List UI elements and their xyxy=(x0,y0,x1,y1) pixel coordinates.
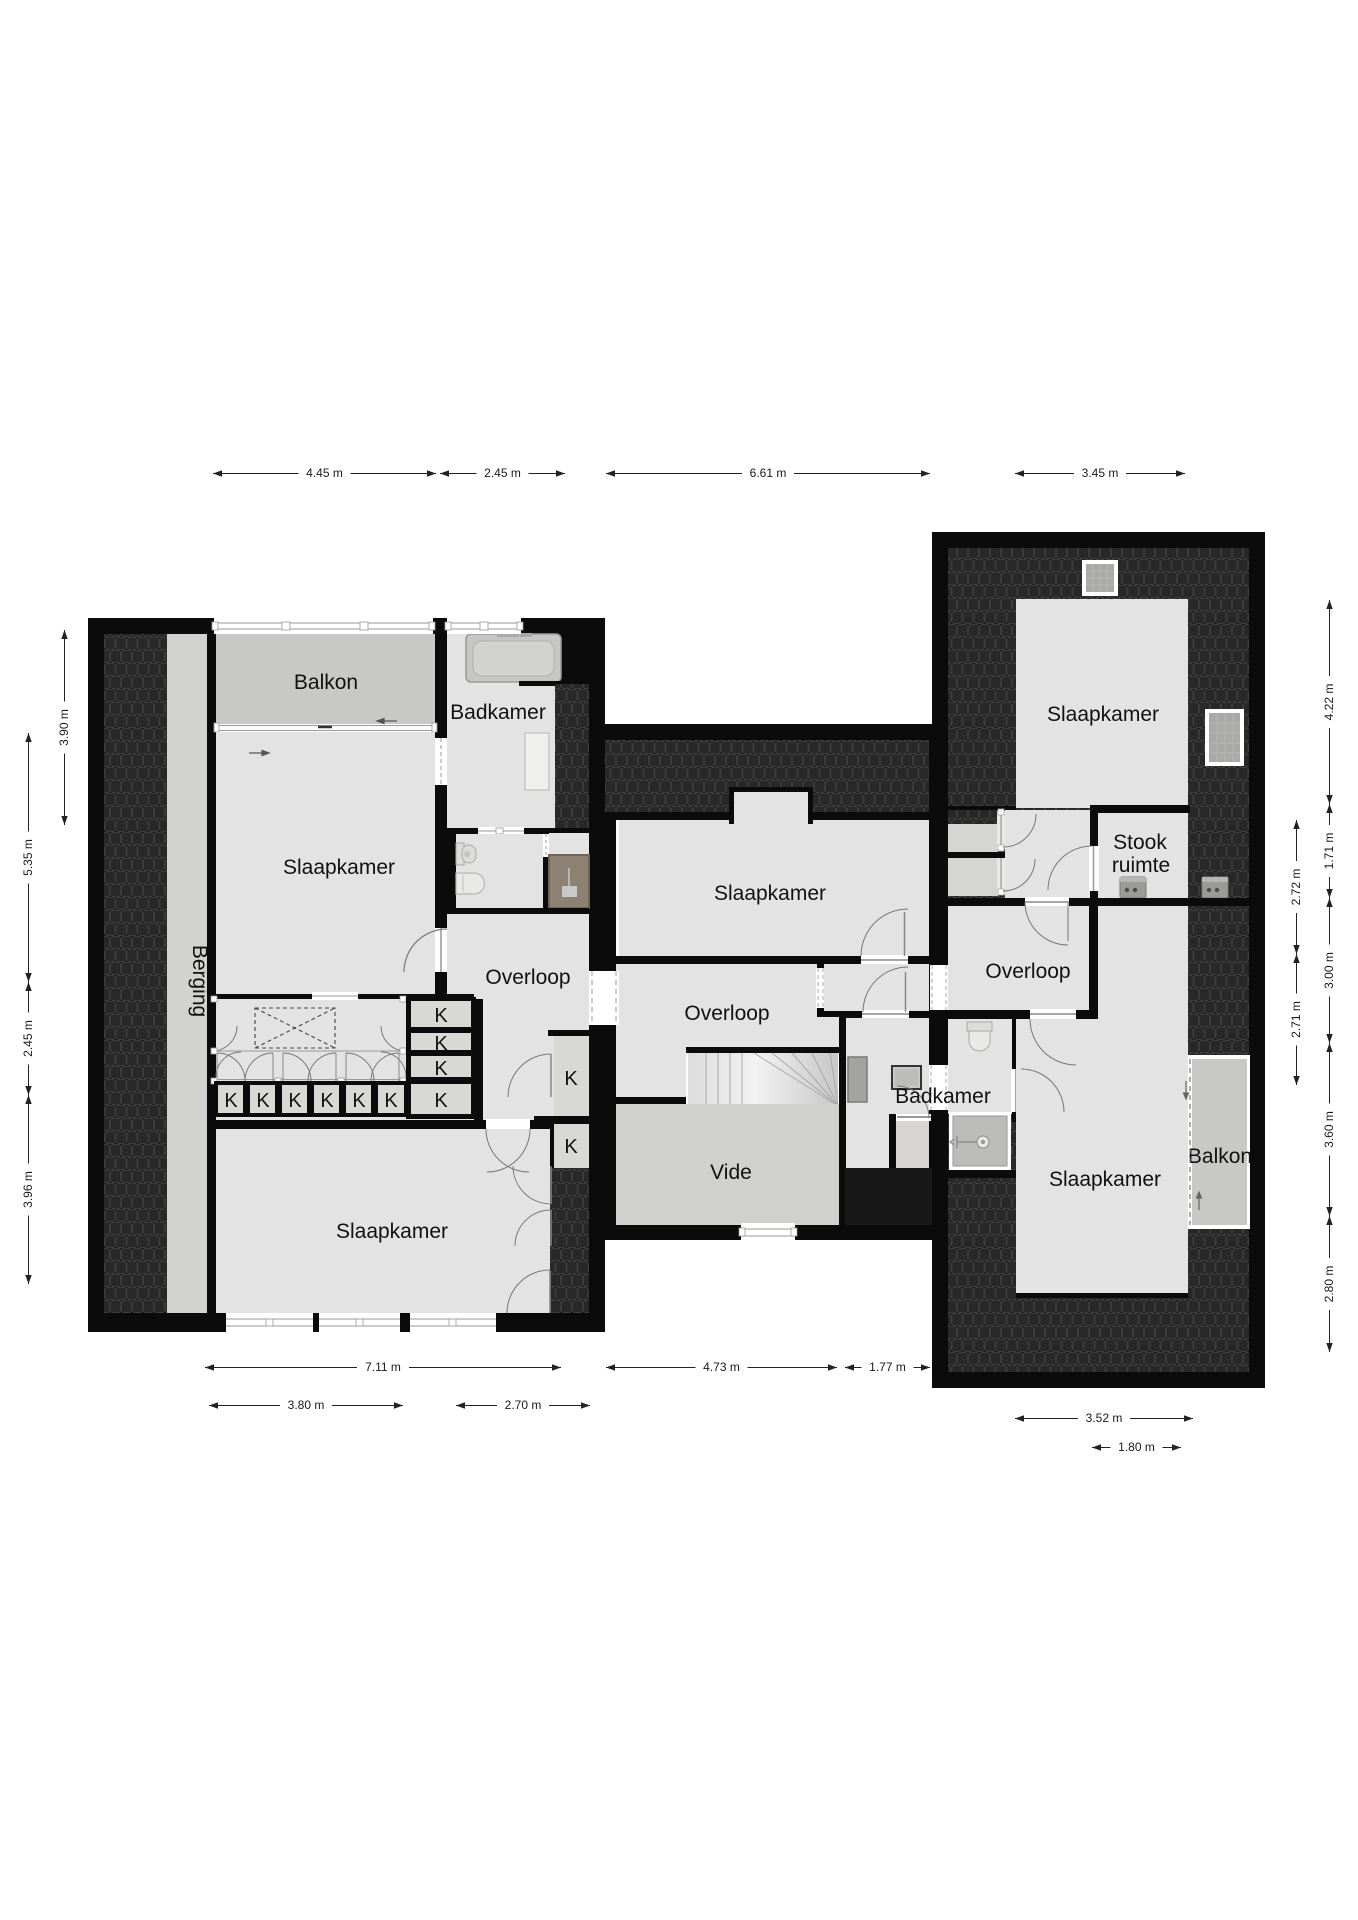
svg-text:3.90 m: 3.90 m xyxy=(57,709,71,746)
svg-text:Overloop: Overloop xyxy=(985,960,1070,983)
svg-text:3.60 m: 3.60 m xyxy=(1322,1111,1336,1148)
svg-text:K: K xyxy=(564,1068,578,1090)
svg-text:K: K xyxy=(224,1090,238,1112)
svg-text:ruimte: ruimte xyxy=(1112,854,1170,877)
svg-text:2.71 m: 2.71 m xyxy=(1289,1001,1303,1038)
svg-text:2.45 m: 2.45 m xyxy=(484,466,521,480)
svg-text:6.61 m: 6.61 m xyxy=(750,466,787,480)
svg-text:3.00 m: 3.00 m xyxy=(1322,952,1336,989)
svg-text:2.45 m: 2.45 m xyxy=(21,1020,35,1057)
svg-text:7.11 m: 7.11 m xyxy=(365,1360,401,1374)
svg-text:K: K xyxy=(564,1136,578,1158)
svg-text:Badkamer: Badkamer xyxy=(450,701,546,724)
svg-text:K: K xyxy=(256,1090,270,1112)
svg-text:2.70 m: 2.70 m xyxy=(505,1398,542,1412)
svg-text:K: K xyxy=(352,1090,366,1112)
svg-text:Slaapkamer: Slaapkamer xyxy=(1049,1168,1161,1191)
svg-text:Balkon: Balkon xyxy=(294,671,358,694)
svg-text:K: K xyxy=(384,1090,398,1112)
svg-text:Balkon: Balkon xyxy=(1188,1145,1252,1168)
svg-text:Overloop: Overloop xyxy=(485,966,570,989)
svg-text:K: K xyxy=(320,1090,334,1112)
svg-text:Overloop: Overloop xyxy=(684,1002,769,1025)
svg-text:Badkamer: Badkamer xyxy=(895,1085,991,1108)
svg-text:K: K xyxy=(434,1005,448,1027)
svg-text:K: K xyxy=(434,1058,448,1080)
svg-text:3.80 m: 3.80 m xyxy=(288,1398,325,1412)
svg-text:Berging: Berging xyxy=(188,945,211,1017)
svg-text:Slaapkamer: Slaapkamer xyxy=(714,882,826,905)
svg-text:2.72 m: 2.72 m xyxy=(1289,869,1303,906)
svg-text:Slaapkamer: Slaapkamer xyxy=(283,856,395,879)
svg-text:Vide: Vide xyxy=(710,1161,752,1184)
svg-text:Stook: Stook xyxy=(1113,831,1167,854)
svg-text:1.77 m: 1.77 m xyxy=(869,1360,906,1374)
svg-text:Slaapkamer: Slaapkamer xyxy=(1047,703,1159,726)
svg-text:K: K xyxy=(434,1033,448,1055)
svg-text:3.45 m: 3.45 m xyxy=(1082,466,1119,480)
svg-text:5.35 m: 5.35 m xyxy=(21,839,35,876)
svg-text:K: K xyxy=(288,1090,302,1112)
svg-text:4.45 m: 4.45 m xyxy=(306,466,343,480)
svg-text:1.80 m: 1.80 m xyxy=(1118,1440,1155,1454)
svg-text:4.22 m: 4.22 m xyxy=(1322,684,1336,721)
svg-text:1.71 m: 1.71 m xyxy=(1322,833,1336,870)
svg-text:K: K xyxy=(434,1090,448,1112)
svg-text:Slaapkamer: Slaapkamer xyxy=(336,1220,448,1243)
svg-text:2.80 m: 2.80 m xyxy=(1322,1266,1336,1303)
svg-text:3.52 m: 3.52 m xyxy=(1086,1411,1123,1425)
svg-text:3.96 m: 3.96 m xyxy=(21,1171,35,1208)
svg-text:4.73 m: 4.73 m xyxy=(703,1360,740,1374)
